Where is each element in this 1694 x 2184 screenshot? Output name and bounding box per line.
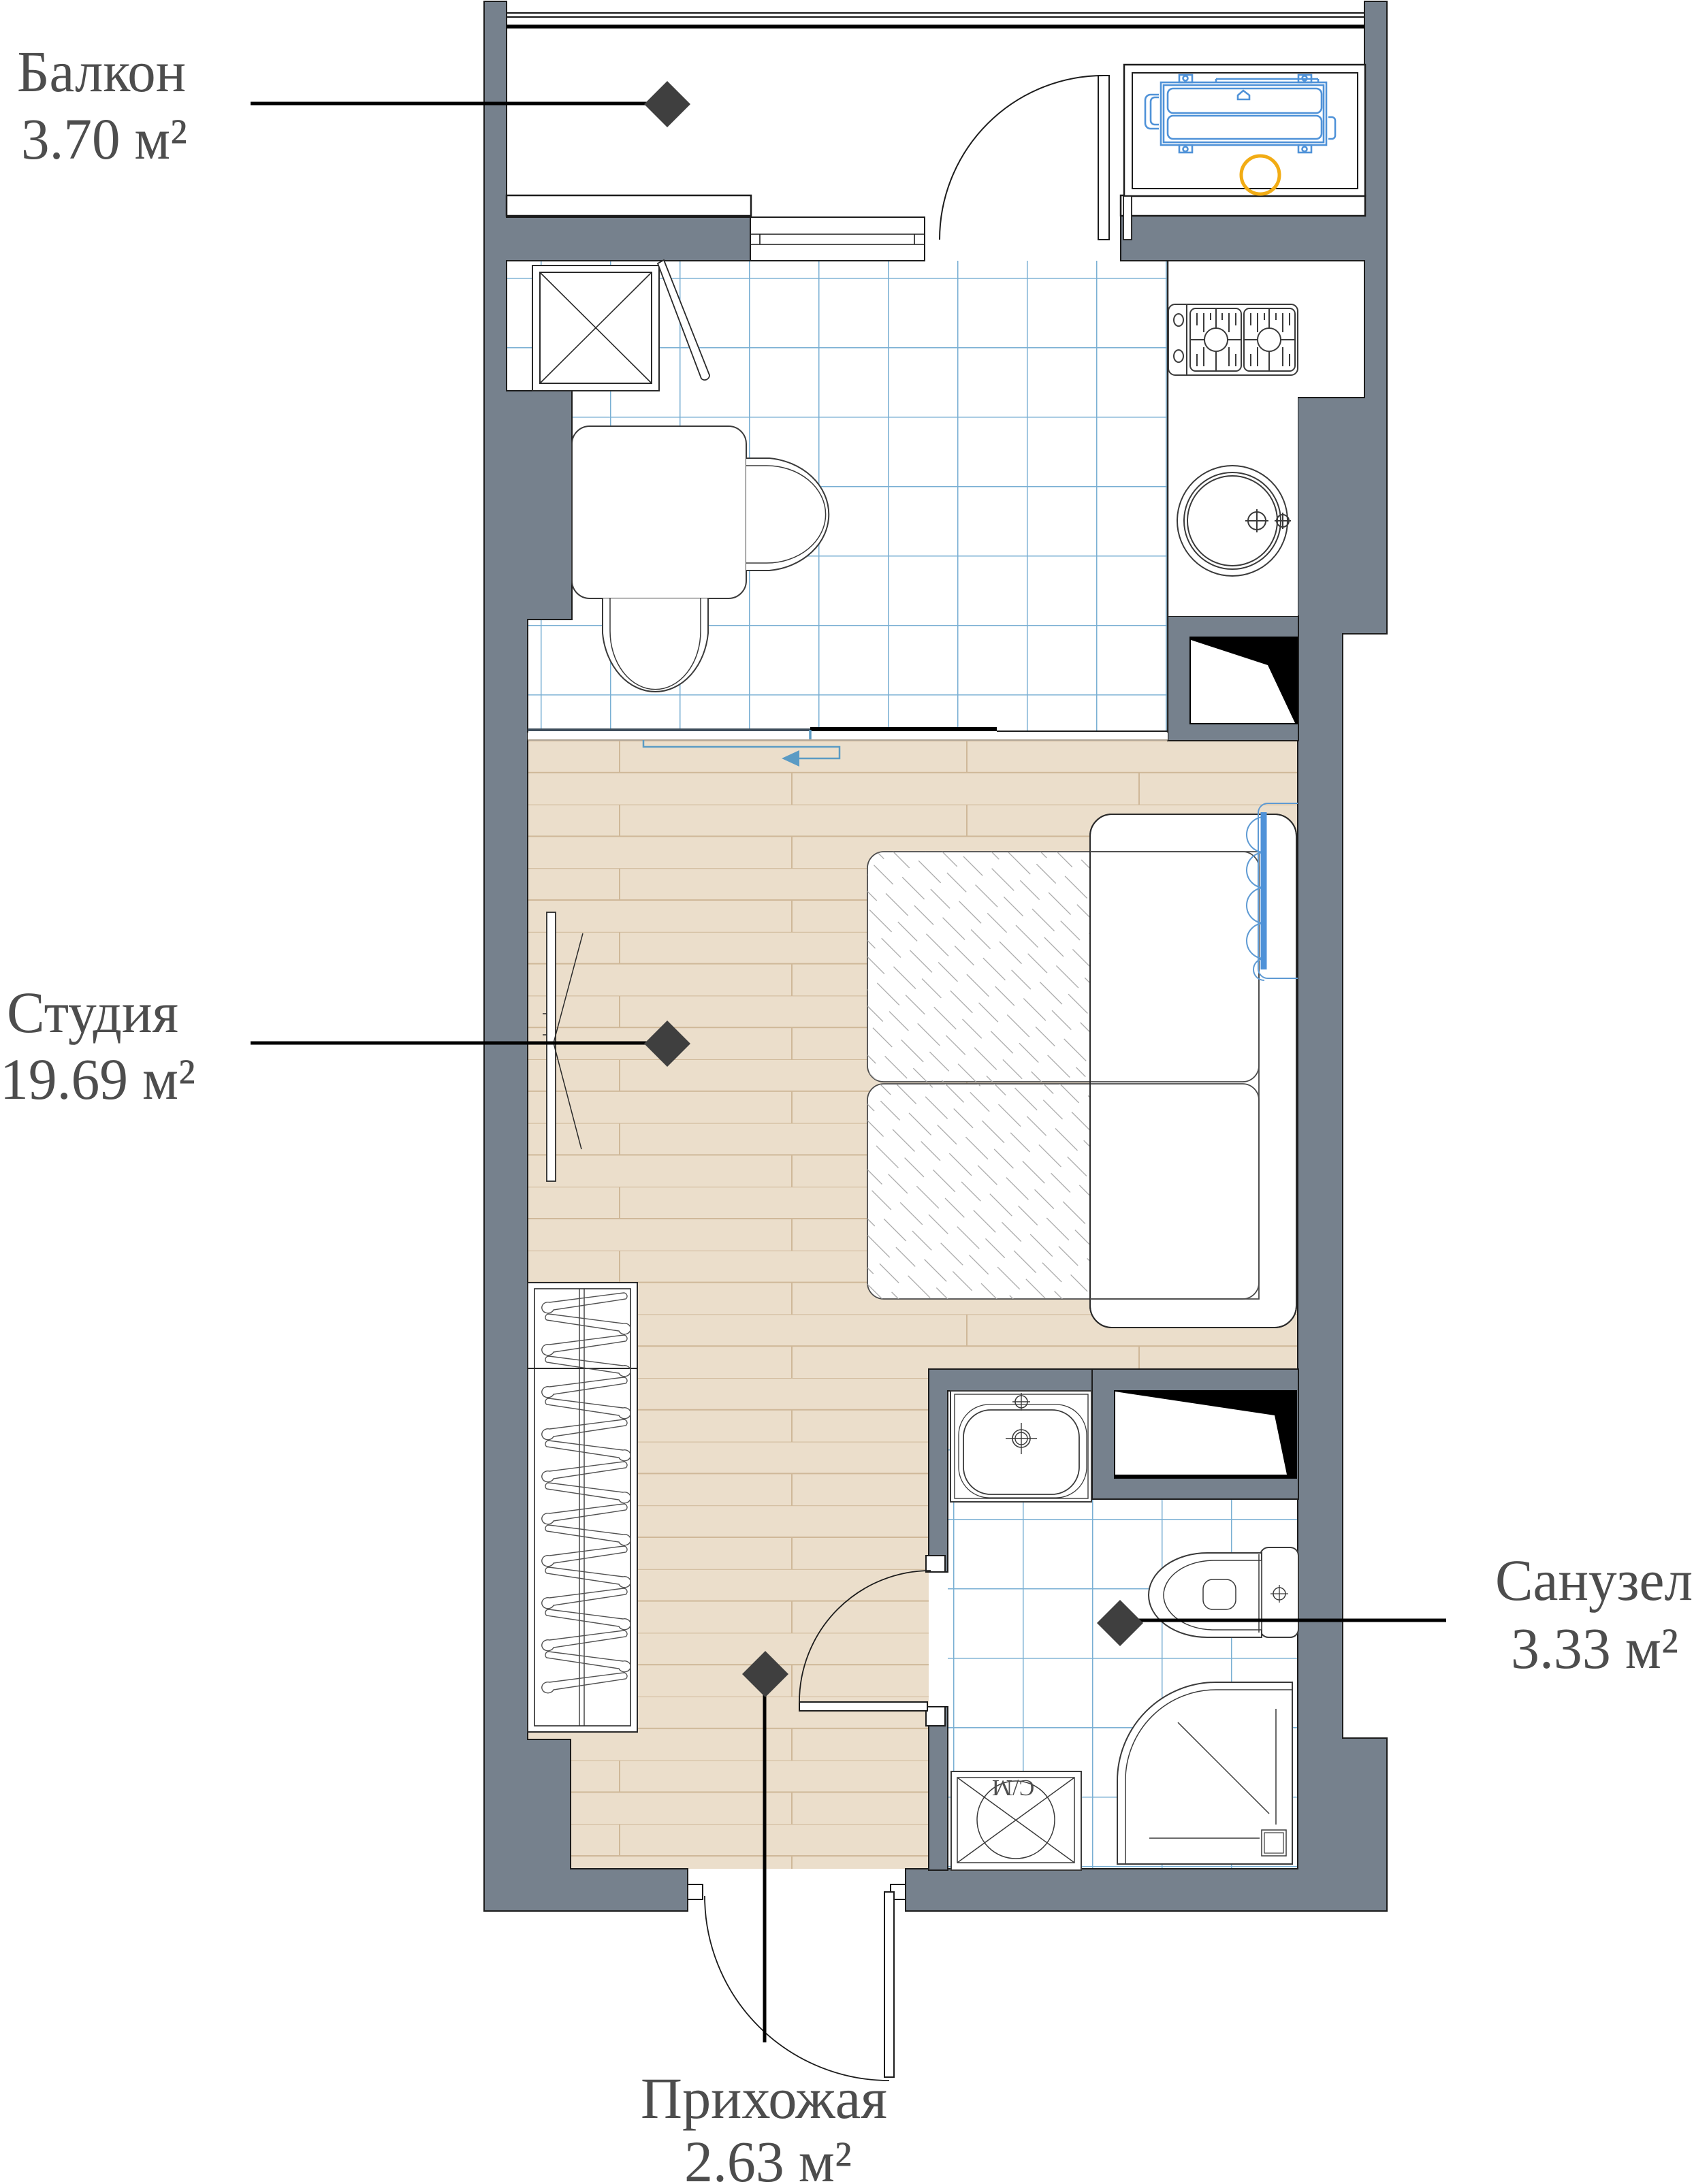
svg-text:Балкон: Балкон bbox=[17, 39, 186, 104]
svg-text:Санузел: Санузел bbox=[1495, 1547, 1693, 1613]
svg-text:2.63 м²: 2.63 м² bbox=[684, 2129, 852, 2184]
svg-text:19.69 м²: 19.69 м² bbox=[0, 1046, 195, 1112]
svg-text:Прихожая: Прихожая bbox=[641, 2066, 887, 2131]
svg-text:Студия: Студия bbox=[7, 980, 178, 1045]
svg-text:С/М: С/М bbox=[992, 1775, 1034, 1800]
svg-text:3.33 м²: 3.33 м² bbox=[1511, 1616, 1678, 1681]
svg-text:3.70 м²: 3.70 м² bbox=[21, 106, 187, 172]
